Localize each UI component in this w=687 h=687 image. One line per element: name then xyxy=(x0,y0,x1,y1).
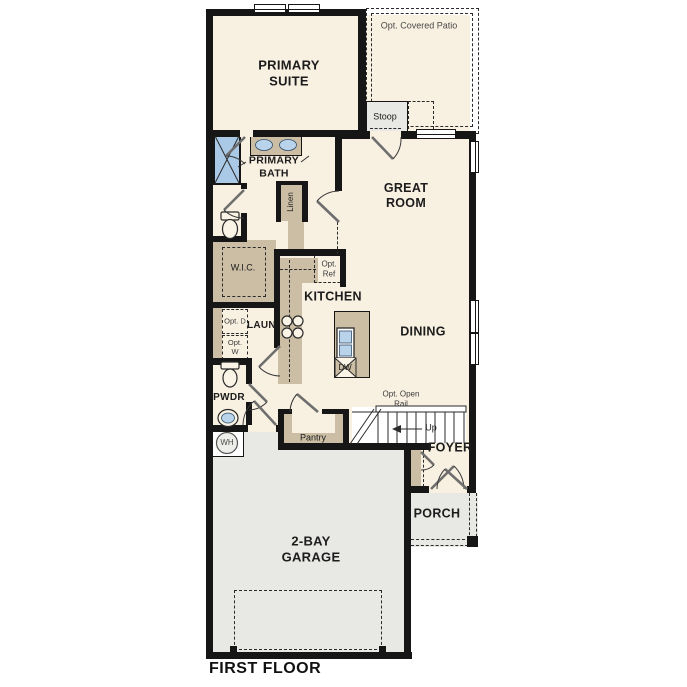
opening-kitchen-greatroom-dash xyxy=(337,222,338,254)
wall-linen-left xyxy=(276,181,281,222)
linen-label: Linen xyxy=(286,192,296,212)
foyer-label: FOYER xyxy=(428,441,473,456)
window-suite-1 xyxy=(254,4,286,13)
foyer-closet xyxy=(411,450,421,487)
foyer-closet-dash xyxy=(423,450,424,487)
garage-label: 2-BAY GARAGE xyxy=(275,533,347,564)
powder-label: PWDR xyxy=(213,392,245,404)
wall-kitchen-top xyxy=(274,249,346,256)
porch-edge-right-inner xyxy=(469,493,470,540)
dishwasher-label: DW xyxy=(338,363,351,373)
porch-label: PORCH xyxy=(414,507,461,522)
primary-suite-label: PRIMARY SUITE xyxy=(249,57,329,88)
wall-garage-bottom xyxy=(206,652,412,659)
floor-plan: PRIMARY SUITE Opt. Covered Patio Stoop P… xyxy=(0,0,687,687)
kitchen-counter-side xyxy=(278,258,302,384)
pantry-label: Pantry xyxy=(300,433,326,444)
garage-door-jamb-right xyxy=(379,646,386,653)
vanity-counter xyxy=(250,134,302,156)
primary-bath-label: PRIMARY BATH xyxy=(242,154,306,179)
window-greatroom-right xyxy=(470,141,479,173)
opening-front-door xyxy=(429,486,467,493)
counter-centerline-top xyxy=(280,269,316,270)
opening-wc-door xyxy=(241,189,247,213)
stoop-door-threshold xyxy=(370,128,401,131)
garage-door xyxy=(234,590,382,650)
kitchen-label: KITCHEN xyxy=(304,290,362,305)
up-label: Up xyxy=(425,423,437,434)
porch-column xyxy=(467,536,478,547)
stairs-area xyxy=(352,407,466,443)
window-suite-2 xyxy=(288,4,320,13)
opt-dryer-label: Opt. D xyxy=(224,317,246,326)
great-room-label: GREAT ROOM xyxy=(376,181,436,211)
wall-wc-bottom xyxy=(206,236,246,242)
window-dining-2 xyxy=(470,333,479,365)
opt-open-rail-label: Opt. Open Rail xyxy=(379,389,423,408)
wall-linen-right xyxy=(302,181,308,222)
laundry-label: LAUN. xyxy=(247,320,279,332)
water-heater-label: WH xyxy=(220,438,233,448)
stoop-label: Stoop xyxy=(373,112,397,123)
opening-stoop-door xyxy=(370,131,401,139)
wall-garage-right xyxy=(404,448,411,659)
counter-centerline xyxy=(289,260,290,382)
shower xyxy=(213,134,241,185)
pantry-floor xyxy=(292,412,335,433)
opt-ref-label: Opt. Ref xyxy=(316,259,342,278)
window-greatroom-top xyxy=(416,129,456,139)
opening-suite-bath xyxy=(240,130,253,137)
opening-garage-entry xyxy=(248,425,276,432)
wall-suite-right xyxy=(358,9,366,134)
wic-label: W.I.C. xyxy=(231,263,256,274)
opt-washer-label: Opt. W xyxy=(224,338,246,356)
garage-door-jamb-left xyxy=(230,646,237,653)
wall-powder-right-a xyxy=(246,358,252,384)
porch-edge-bottom-inner xyxy=(411,539,470,540)
dining-label: DINING xyxy=(400,325,446,340)
wall-top-exterior xyxy=(206,9,366,16)
window-dining-1 xyxy=(470,300,479,333)
wall-hall-greatroom xyxy=(335,131,342,191)
first-floor-title: FIRST FLOOR xyxy=(209,660,321,678)
wall-wic-laundry xyxy=(206,302,280,308)
wall-left-exterior xyxy=(206,9,213,659)
covered-patio-label: Opt. Covered Patio xyxy=(381,21,458,32)
opening-pantry-door xyxy=(292,409,322,414)
